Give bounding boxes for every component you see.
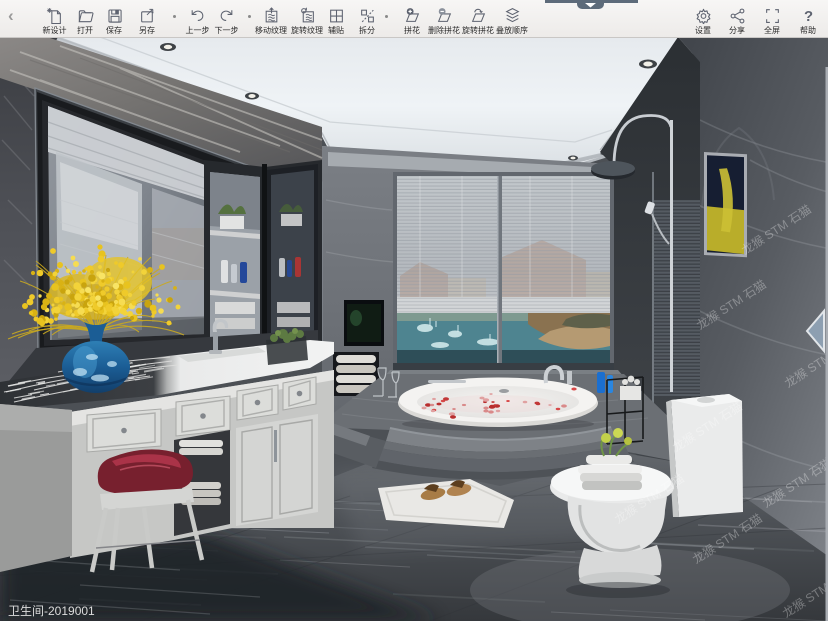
svg-text:卫生间-2019001: 卫生间-2019001 bbox=[8, 604, 95, 618]
svg-text:?: ? bbox=[803, 9, 812, 24]
